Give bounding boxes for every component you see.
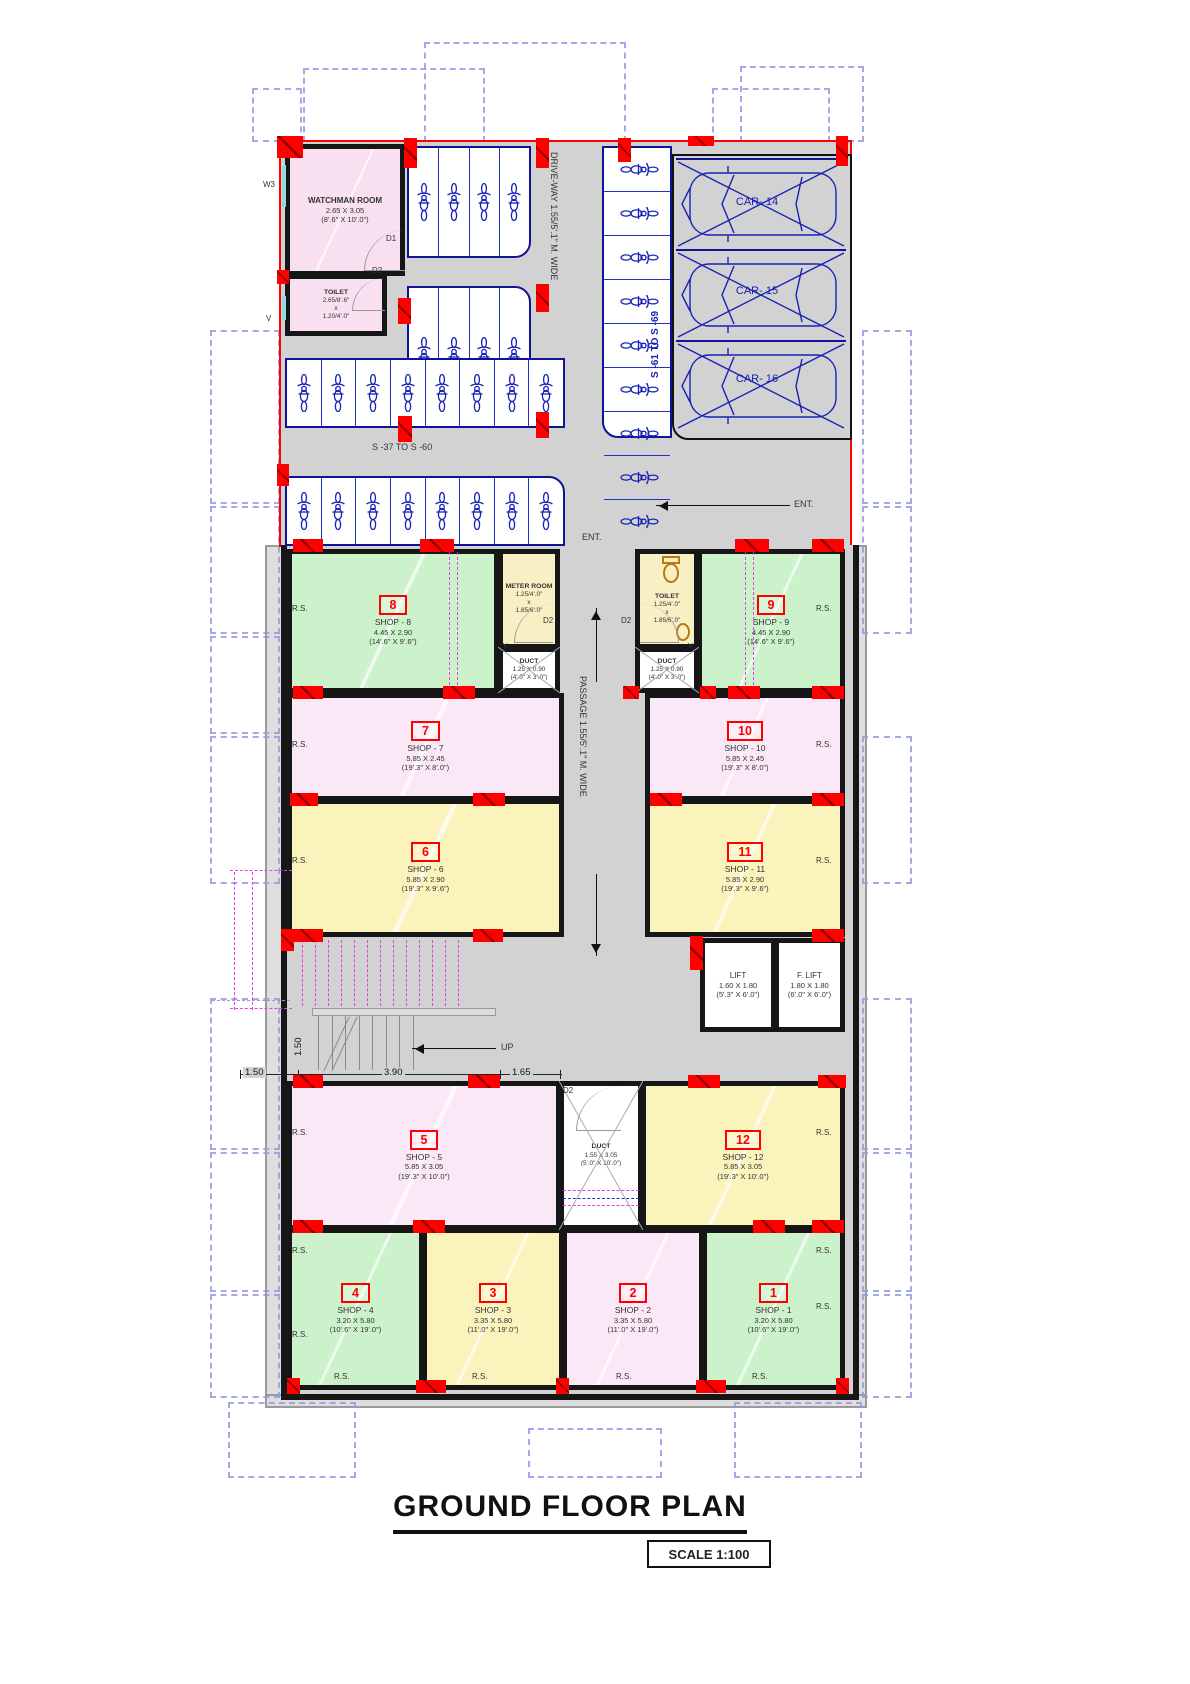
rolling-shutter-label: R.S. bbox=[334, 1372, 350, 1381]
adjacent-structure-outline bbox=[228, 1402, 356, 1478]
shop-dim-ft: (11'.0" X 19'.0") bbox=[608, 1325, 659, 1334]
shop-dim-ft: (19'.3" X 10'.0") bbox=[717, 1172, 769, 1181]
duct-cross bbox=[559, 1081, 643, 1230]
shop-dim-ft: (19'.3" X 9'.6") bbox=[721, 884, 768, 893]
toilet-title: TOILET bbox=[655, 593, 679, 601]
column-marker bbox=[696, 1380, 726, 1393]
shop-number-badge: 6 bbox=[411, 842, 440, 862]
shop-number-badge: 4 bbox=[341, 1283, 370, 1303]
motorcycle-icon bbox=[621, 426, 659, 442]
column-marker bbox=[290, 793, 318, 806]
lift-dim-ft: (5'.3" X 6'.0") bbox=[716, 990, 759, 999]
column-marker bbox=[404, 138, 417, 168]
motorcycle-stall bbox=[500, 148, 529, 256]
column-marker bbox=[293, 1220, 323, 1233]
stair-tread-line bbox=[386, 1016, 387, 1070]
column-marker bbox=[836, 1378, 849, 1394]
shop-name: SHOP - 8 bbox=[375, 617, 411, 628]
adjacent-structure-outline bbox=[210, 506, 280, 634]
stair-overhead-line bbox=[458, 940, 459, 1006]
motorcycle-icon bbox=[616, 162, 659, 178]
column-marker bbox=[293, 1075, 323, 1088]
watchman-toilet-dim1: 2.65/8'.6" bbox=[323, 297, 350, 305]
stair-landing-edge bbox=[312, 1008, 496, 1016]
shop-dim-ft: (19'.3" X 10'.0") bbox=[398, 1172, 450, 1181]
adjacent-structure-outline bbox=[712, 88, 830, 142]
column-marker bbox=[688, 1075, 720, 1088]
column-marker bbox=[398, 416, 412, 442]
fire-lift: F. LIFT 1.80 X 1.80 (6'.0" X 6'.0") bbox=[774, 938, 845, 1032]
dim-seg3: 1.65 bbox=[510, 1067, 533, 1078]
column-marker bbox=[728, 686, 760, 699]
shop-dim-m: 5.85 X 2.45 bbox=[726, 754, 764, 763]
shop-dim-ft: (19'.3" X 9'.6") bbox=[402, 884, 449, 893]
rolling-shutter-label: R.S. bbox=[292, 856, 308, 865]
car-stall-label: CAR- 16 bbox=[712, 373, 802, 385]
stair-overhead-line bbox=[315, 940, 316, 1006]
motorcycle-icon bbox=[469, 492, 485, 530]
shop-dim-ft: (14'.6" X 9'.6") bbox=[369, 637, 416, 646]
rolling-shutter-label: R.S. bbox=[616, 1372, 632, 1381]
watchman-toilet-dim3: 1.20/4'.0" bbox=[323, 313, 350, 321]
stair-up-arrow bbox=[412, 1048, 496, 1049]
shop-name: SHOP - 2 bbox=[615, 1305, 651, 1316]
stair-overhead-line bbox=[302, 940, 303, 1006]
door-label-d1: D1 bbox=[386, 234, 396, 243]
column-marker bbox=[293, 686, 323, 699]
duct-cross bbox=[498, 647, 560, 693]
column-marker bbox=[293, 929, 323, 942]
overhead-dashed-line bbox=[252, 872, 253, 1010]
stair-overhead-line bbox=[341, 940, 342, 1006]
motorcycle-parking-row bbox=[285, 358, 565, 428]
watchman-toilet-title: TOILET bbox=[324, 289, 348, 297]
stair-overhead-line bbox=[445, 940, 446, 1006]
motorcycle-icon bbox=[538, 492, 554, 530]
motorcycle-stall bbox=[287, 360, 322, 426]
shop-dim-ft: (19'.3" X 8'.0") bbox=[402, 763, 449, 772]
drawing-title: GROUND FLOOR PLAN bbox=[393, 1490, 747, 1534]
motorcycle-icon bbox=[469, 374, 485, 412]
shop-name: SHOP - 12 bbox=[723, 1152, 764, 1163]
motorcycle-icon bbox=[621, 470, 659, 486]
column-marker bbox=[818, 1075, 846, 1088]
passage-arrow-up bbox=[596, 608, 597, 682]
column-marker bbox=[812, 1220, 844, 1233]
motorcycle-stall bbox=[356, 478, 391, 544]
shop-5: 5SHOP - 55.85 X 3.05(19'.3" X 10'.0") bbox=[287, 1081, 561, 1230]
shop-dim-m: 5.85 X 3.05 bbox=[724, 1162, 762, 1171]
door-label-d2: D2 bbox=[563, 1086, 573, 1095]
motorcycle-stall bbox=[604, 412, 670, 456]
door-label-d2: D2 bbox=[372, 266, 382, 275]
stair-tread-line bbox=[399, 1016, 400, 1070]
stair-tread-line bbox=[372, 1016, 373, 1070]
motorcycle-stall bbox=[604, 148, 670, 192]
column-marker bbox=[398, 298, 411, 324]
shop-number-badge: 5 bbox=[410, 1130, 439, 1150]
shop-dim-ft: (19'.3" X 8'.0") bbox=[721, 763, 768, 772]
shop-2: 2SHOP - 23.35 X 5.80(11'.0" X 19'.0") bbox=[562, 1228, 704, 1390]
motorcycle-icon bbox=[616, 470, 659, 486]
stair-overhead-line bbox=[328, 940, 329, 1006]
door-label-d2: D2 bbox=[621, 616, 631, 625]
stair-tread-line bbox=[332, 1016, 333, 1070]
rolling-shutter-label: R.S. bbox=[752, 1372, 768, 1381]
shop-dim-m: 4.45 X 2.90 bbox=[752, 628, 790, 637]
watchman-toilet-dim2: x bbox=[334, 305, 337, 313]
column-marker bbox=[812, 686, 844, 699]
stair-tread-line bbox=[359, 1016, 360, 1070]
rolling-shutter-label: R.S. bbox=[816, 1246, 832, 1255]
shop-8: 8SHOP - 84.45 X 2.90(14'.6" X 9'.6") bbox=[287, 549, 499, 693]
scooter-range-main-label: S -37 TO S -60 bbox=[372, 442, 432, 452]
shop-dim-ft: (10'.6" X 19'.0") bbox=[748, 1325, 800, 1334]
meter-room-title: METER ROOM bbox=[506, 583, 553, 591]
motorcycle-icon bbox=[504, 374, 520, 412]
motorcycle-stall bbox=[426, 478, 461, 544]
motorcycle-icon bbox=[621, 382, 659, 398]
stair-overhead-line bbox=[367, 940, 368, 1006]
vent-v bbox=[282, 296, 286, 320]
shop-name: SHOP - 9 bbox=[753, 617, 789, 628]
motorcycle-icon bbox=[504, 492, 520, 530]
stair-overhead-line bbox=[406, 940, 407, 1006]
overhead-dashed-line bbox=[753, 552, 754, 690]
motorcycle-icon bbox=[296, 492, 312, 530]
toilet-fixture-icon bbox=[658, 556, 684, 586]
stair-tread-line bbox=[318, 1016, 319, 1070]
lift: LIFT 1.60 X 1.80 (5'.3" X 6'.0") bbox=[700, 938, 776, 1032]
adjacent-structure-outline bbox=[528, 1428, 662, 1478]
shop-dim-m: 5.85 X 3.05 bbox=[405, 1162, 443, 1171]
column-marker bbox=[650, 793, 682, 806]
column-marker bbox=[277, 464, 289, 486]
shop-number-badge: 8 bbox=[379, 595, 408, 615]
adjacent-structure-outline bbox=[862, 1152, 912, 1292]
adjacent-structure-outline bbox=[210, 636, 280, 734]
adjacent-structure-outline bbox=[862, 1294, 912, 1398]
driveway-label: DRIVE-WAY 1.55/5'.1" M. WIDE bbox=[549, 152, 559, 402]
stair-up-label: UP bbox=[501, 1042, 514, 1052]
entry-label-1: ENT. bbox=[794, 499, 814, 509]
column-marker bbox=[287, 1378, 300, 1394]
motorcycle-icon bbox=[365, 374, 381, 412]
shop-9: 9SHOP - 94.45 X 2.90(14'.6" X 9'.6") bbox=[697, 549, 845, 693]
stair-overhead-line bbox=[432, 940, 433, 1006]
fire-lift-title: F. LIFT bbox=[797, 971, 822, 981]
motorcycle-stall bbox=[495, 360, 530, 426]
motorcycle-icon bbox=[434, 374, 450, 412]
stair-overhead-line bbox=[393, 940, 394, 1006]
motorcycle-icon bbox=[400, 492, 416, 530]
column-marker bbox=[536, 138, 549, 168]
overhead-dashed-line bbox=[563, 1190, 639, 1191]
rolling-shutter-label: R.S. bbox=[816, 1128, 832, 1137]
adjacent-structure-outline bbox=[252, 88, 302, 142]
motorcycle-stall bbox=[287, 478, 322, 544]
column-marker bbox=[735, 539, 769, 552]
stair-overhead-line bbox=[419, 940, 420, 1006]
motorcycle-icon bbox=[616, 514, 659, 530]
motorcycle-icon bbox=[506, 183, 522, 221]
shop-dim-m: 5.85 X 2.90 bbox=[726, 875, 764, 884]
motorcycle-parking-row bbox=[285, 476, 565, 546]
motorcycle-icon bbox=[621, 514, 659, 530]
column-marker bbox=[690, 936, 703, 970]
rolling-shutter-label: R.S. bbox=[292, 740, 308, 749]
rolling-shutter-label: R.S. bbox=[816, 856, 832, 865]
duct-cross bbox=[635, 647, 699, 693]
motorcycle-stall bbox=[426, 360, 461, 426]
window-w3 bbox=[282, 165, 286, 207]
motorcycle-stall bbox=[439, 148, 469, 256]
shop-name: SHOP - 7 bbox=[407, 743, 443, 754]
rolling-shutter-label: R.S. bbox=[816, 1302, 832, 1311]
rolling-shutter-label: R.S. bbox=[816, 740, 832, 749]
overhead-dashed-line bbox=[563, 1205, 639, 1206]
adjacent-structure-outline bbox=[210, 1294, 280, 1398]
column-marker bbox=[700, 686, 716, 699]
adjacent-structure-outline bbox=[734, 1402, 862, 1478]
shop-name: SHOP - 3 bbox=[475, 1305, 511, 1316]
motorcycle-icon bbox=[400, 374, 416, 412]
motorcycle-icon bbox=[330, 374, 346, 412]
rolling-shutter-label: R.S. bbox=[292, 1246, 308, 1255]
column-marker bbox=[468, 1075, 500, 1088]
car-stall bbox=[676, 340, 846, 430]
overhead-dashed-line bbox=[234, 872, 235, 1010]
motorcycle-icon bbox=[621, 206, 659, 222]
shop-number-badge: 9 bbox=[757, 595, 786, 615]
shop-dim-ft: (14'.6" X 9'.6") bbox=[747, 637, 794, 646]
overhead-dashed-line bbox=[230, 870, 292, 871]
shop-name: SHOP - 5 bbox=[406, 1152, 442, 1163]
rolling-shutter-label: R.S. bbox=[816, 604, 832, 613]
stair-tread-line bbox=[345, 1016, 346, 1070]
column-marker bbox=[618, 138, 631, 162]
column-marker bbox=[812, 539, 844, 552]
drawing-scale: SCALE 1:100 bbox=[647, 1540, 771, 1568]
car-stall-label: CAR- 14 bbox=[712, 196, 802, 208]
fire-lift-dim-ft: (6'.0" X 6'.0") bbox=[788, 990, 831, 999]
watchman-room-title: WATCHMAN ROOM bbox=[308, 196, 382, 206]
shop-number-badge: 7 bbox=[411, 721, 440, 741]
overhead-dashed-line bbox=[745, 552, 746, 690]
shop-name: SHOP - 11 bbox=[725, 864, 765, 875]
shop-dim-m: 3.35 X 5.80 bbox=[614, 1316, 652, 1325]
fire-lift-dim-m: 1.80 X 1.80 bbox=[790, 981, 828, 990]
adjacent-structure-outline bbox=[210, 736, 280, 884]
car-stall-label: CAR- 15 bbox=[712, 285, 802, 297]
meter-room-dim2: x bbox=[527, 599, 530, 607]
rolling-shutter-label: R.S. bbox=[292, 1128, 308, 1137]
shop-number-badge: 12 bbox=[725, 1130, 761, 1150]
overhead-dashed-line bbox=[212, 1000, 290, 1001]
shop-number-badge: 2 bbox=[619, 1283, 648, 1303]
column-marker bbox=[443, 686, 475, 699]
floor-plan-canvas: WATCHMAN ROOM 2.65 X 3.05 (8'.6" X 10'.0… bbox=[0, 0, 1190, 1684]
motorcycle-icon bbox=[616, 206, 659, 222]
vent-label-v: V bbox=[503, 643, 508, 650]
entry-label-2: ENT. bbox=[582, 532, 602, 542]
column-marker bbox=[753, 1220, 785, 1233]
shop-dim-ft: (11'.0" X 19'.0") bbox=[468, 1325, 519, 1334]
entry-arrow bbox=[656, 505, 790, 506]
shop-7: 7SHOP - 75.85 X 2.45(19'.3" X 8'.0") bbox=[287, 693, 564, 801]
car-icon bbox=[676, 342, 846, 430]
shop-dim-m: 3.20 X 5.80 bbox=[336, 1316, 374, 1325]
motorcycle-icon bbox=[434, 492, 450, 530]
motorcycle-stall bbox=[604, 456, 670, 500]
shop-number-badge: 11 bbox=[727, 842, 762, 862]
passage-arrow-down bbox=[596, 874, 597, 956]
shop-number-badge: 3 bbox=[479, 1283, 508, 1303]
vent-label-v: V bbox=[688, 643, 693, 650]
column-marker bbox=[812, 929, 844, 942]
adjacent-structure-outline bbox=[424, 42, 626, 142]
door-label-d2: D2 bbox=[543, 616, 553, 625]
shop-name: SHOP - 10 bbox=[725, 743, 766, 754]
shop-dim-ft: (10'.6" X 19'.0") bbox=[330, 1325, 382, 1334]
column-marker bbox=[293, 539, 323, 552]
lift-dim-m: 1.60 X 1.80 bbox=[719, 981, 757, 990]
overhead-dashed-line bbox=[449, 552, 450, 690]
shop-11: 11SHOP - 115.85 X 2.90(19'.3" X 9'.6") bbox=[645, 799, 845, 937]
shop-dim-m: 3.35 X 5.80 bbox=[474, 1316, 512, 1325]
column-marker bbox=[688, 136, 714, 146]
shop-6: 6SHOP - 65.85 X 2.90(19'.3" X 9'.6") bbox=[287, 799, 564, 937]
adjacent-structure-outline bbox=[862, 998, 912, 1150]
motorcycle-stall bbox=[460, 360, 495, 426]
stair-overhead-line bbox=[380, 940, 381, 1006]
stair-overhead-line bbox=[354, 940, 355, 1006]
column-marker bbox=[416, 1380, 446, 1393]
motorcycle-icon bbox=[296, 374, 312, 412]
motorcycle-stall bbox=[460, 478, 495, 544]
scooter-range-right-label: S -61 TO S -69 bbox=[650, 252, 661, 378]
motorcycle-icon bbox=[330, 492, 346, 530]
column-marker bbox=[556, 1378, 569, 1394]
shop-number-badge: 10 bbox=[727, 721, 763, 741]
overhead-dashed-line bbox=[230, 1008, 292, 1009]
column-marker bbox=[536, 412, 549, 438]
shop-12: 12SHOP - 125.85 X 3.05(19'.3" X 10'.0") bbox=[641, 1081, 845, 1230]
shop-name: SHOP - 1 bbox=[755, 1305, 791, 1316]
shop-dim-m: 3.20 X 5.80 bbox=[754, 1316, 792, 1325]
column-marker bbox=[623, 686, 639, 699]
motorcycle-parking-row bbox=[602, 146, 672, 438]
overhead-dashed-line bbox=[457, 552, 458, 690]
column-marker bbox=[812, 793, 844, 806]
adjacent-structure-outline bbox=[210, 330, 280, 504]
motorcycle-stall bbox=[529, 478, 563, 544]
motorcycle-stall bbox=[356, 360, 391, 426]
lift-title: LIFT bbox=[730, 971, 746, 981]
motorcycle-stall bbox=[322, 360, 357, 426]
shop-name: SHOP - 4 bbox=[337, 1305, 373, 1316]
dim-seg1: 1.50 bbox=[243, 1067, 266, 1078]
rolling-shutter-label: R.S. bbox=[292, 604, 308, 613]
motorcycle-icon bbox=[365, 492, 381, 530]
motorcycle-parking-row bbox=[407, 146, 531, 258]
column-marker bbox=[473, 793, 505, 806]
shop-number-badge: 1 bbox=[759, 1283, 788, 1303]
window-label-w3: W3 bbox=[263, 180, 275, 189]
motorcycle-icon bbox=[621, 162, 659, 178]
adjacent-structure-outline bbox=[862, 330, 912, 504]
column-marker bbox=[836, 136, 848, 166]
column-marker bbox=[536, 284, 549, 312]
motorcycle-icon bbox=[476, 183, 492, 221]
watchman-room-dim-ft: (8'.6" X 10'.0") bbox=[321, 215, 368, 224]
motorcycle-icon bbox=[616, 426, 659, 442]
passage-label: PASSAGE 1.55/5'.1" M. WIDE bbox=[578, 676, 588, 872]
rolling-shutter-label: R.S. bbox=[292, 1330, 308, 1339]
shop-dim-m: 4.45 X 2.90 bbox=[374, 628, 412, 637]
dim-seg2: 3.90 bbox=[382, 1067, 405, 1078]
column-marker bbox=[277, 136, 303, 158]
shop-10: 10SHOP - 105.85 X 2.45(19'.3" X 8'.0") bbox=[645, 693, 845, 801]
rolling-shutter-label: R.S. bbox=[472, 1372, 488, 1381]
stair-width-dim: 1.50 bbox=[291, 1022, 306, 1056]
column-marker bbox=[420, 539, 454, 552]
vent-label-v: V bbox=[266, 314, 271, 323]
motorcycle-icon bbox=[446, 183, 462, 221]
adjacent-structure-outline bbox=[210, 1152, 280, 1292]
column-marker bbox=[277, 270, 289, 284]
shop-3: 3SHOP - 33.35 X 5.80(11'.0" X 19'.0") bbox=[422, 1228, 564, 1390]
motorcycle-stall bbox=[604, 192, 670, 236]
meter-room-dim1: 1.25/4'.0" bbox=[516, 591, 543, 599]
column-marker bbox=[473, 929, 503, 942]
watchman-room-dim-m: 2.65 X 3.05 bbox=[326, 206, 364, 215]
shop-dim-m: 5.85 X 2.45 bbox=[406, 754, 444, 763]
adjacent-structure-outline bbox=[862, 736, 912, 884]
overhead-dashed-line bbox=[563, 1198, 639, 1199]
motorcycle-icon bbox=[416, 183, 432, 221]
motorcycle-stall bbox=[470, 148, 500, 256]
motorcycle-stall bbox=[495, 478, 530, 544]
motorcycle-icon bbox=[616, 382, 659, 398]
shop-dim-m: 5.85 X 2.90 bbox=[406, 875, 444, 884]
column-marker bbox=[413, 1220, 445, 1233]
shop-name: SHOP - 6 bbox=[407, 864, 443, 875]
motorcycle-stall bbox=[391, 478, 426, 544]
adjacent-structure-outline bbox=[862, 506, 912, 634]
motorcycle-stall bbox=[322, 478, 357, 544]
